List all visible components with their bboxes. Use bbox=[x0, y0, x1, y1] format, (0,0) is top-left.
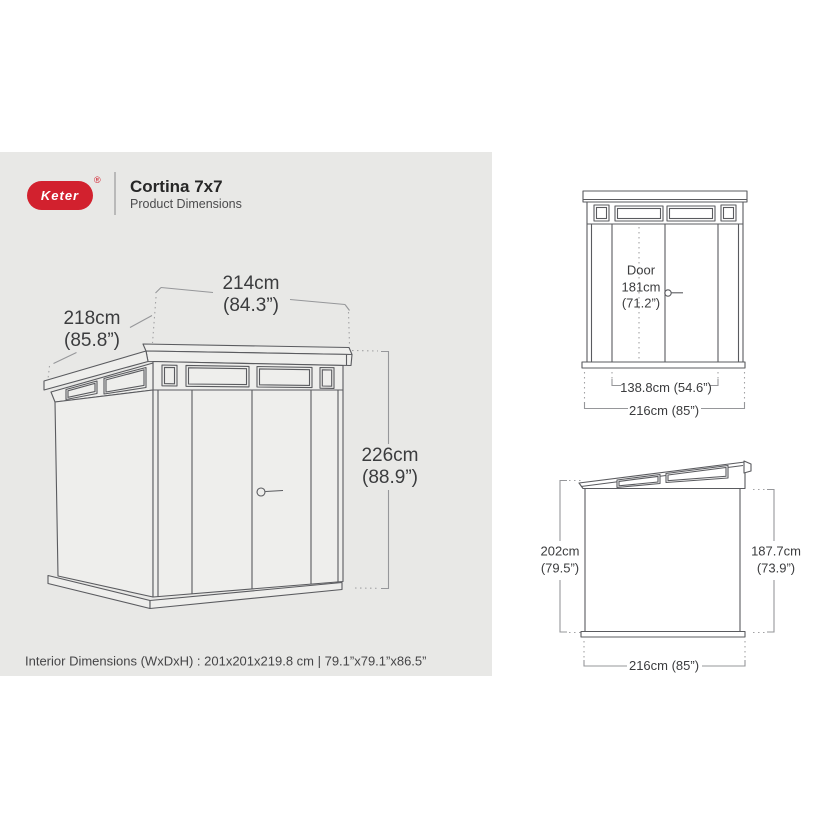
iso-depth-dimension: 218cm (85.8”) bbox=[63, 308, 120, 352]
side-wall bbox=[55, 390, 153, 597]
side-wall bbox=[585, 489, 740, 632]
interior-dimensions-text: Interior Dimensions (WxDxH) : 201x201x21… bbox=[25, 654, 426, 669]
front-roof-fascia bbox=[583, 191, 747, 202]
side-left-height-dimension: 202cm (79.5”) bbox=[540, 544, 579, 577]
shed-walls bbox=[55, 390, 343, 597]
side-base bbox=[581, 632, 745, 638]
iso-height-dimension: 226cm (88.9”) bbox=[361, 445, 418, 489]
iso-width-dimension: 214cm (84.3”) bbox=[222, 273, 279, 317]
front-wall bbox=[153, 390, 343, 597]
side-roof bbox=[579, 461, 751, 489]
isometric-shed-drawing bbox=[0, 152, 492, 676]
front-overall-width-dimension: 216cm (85”) bbox=[629, 403, 699, 420]
side-overall-width-dimension: 216cm (85”) bbox=[629, 658, 699, 675]
product-dimensions-sheet: Keter ® Cortina 7x7 Product Dimensions bbox=[0, 0, 832, 832]
side-right-height-dimension: 187.7cm (73.9”) bbox=[751, 544, 801, 577]
door-dimension-label: Door 181cm (71.2”) bbox=[621, 262, 660, 312]
front-base bbox=[582, 362, 745, 368]
shed-front-window-band bbox=[153, 362, 343, 391]
door-width-dimension: 138.8cm (54.6”) bbox=[620, 380, 712, 397]
